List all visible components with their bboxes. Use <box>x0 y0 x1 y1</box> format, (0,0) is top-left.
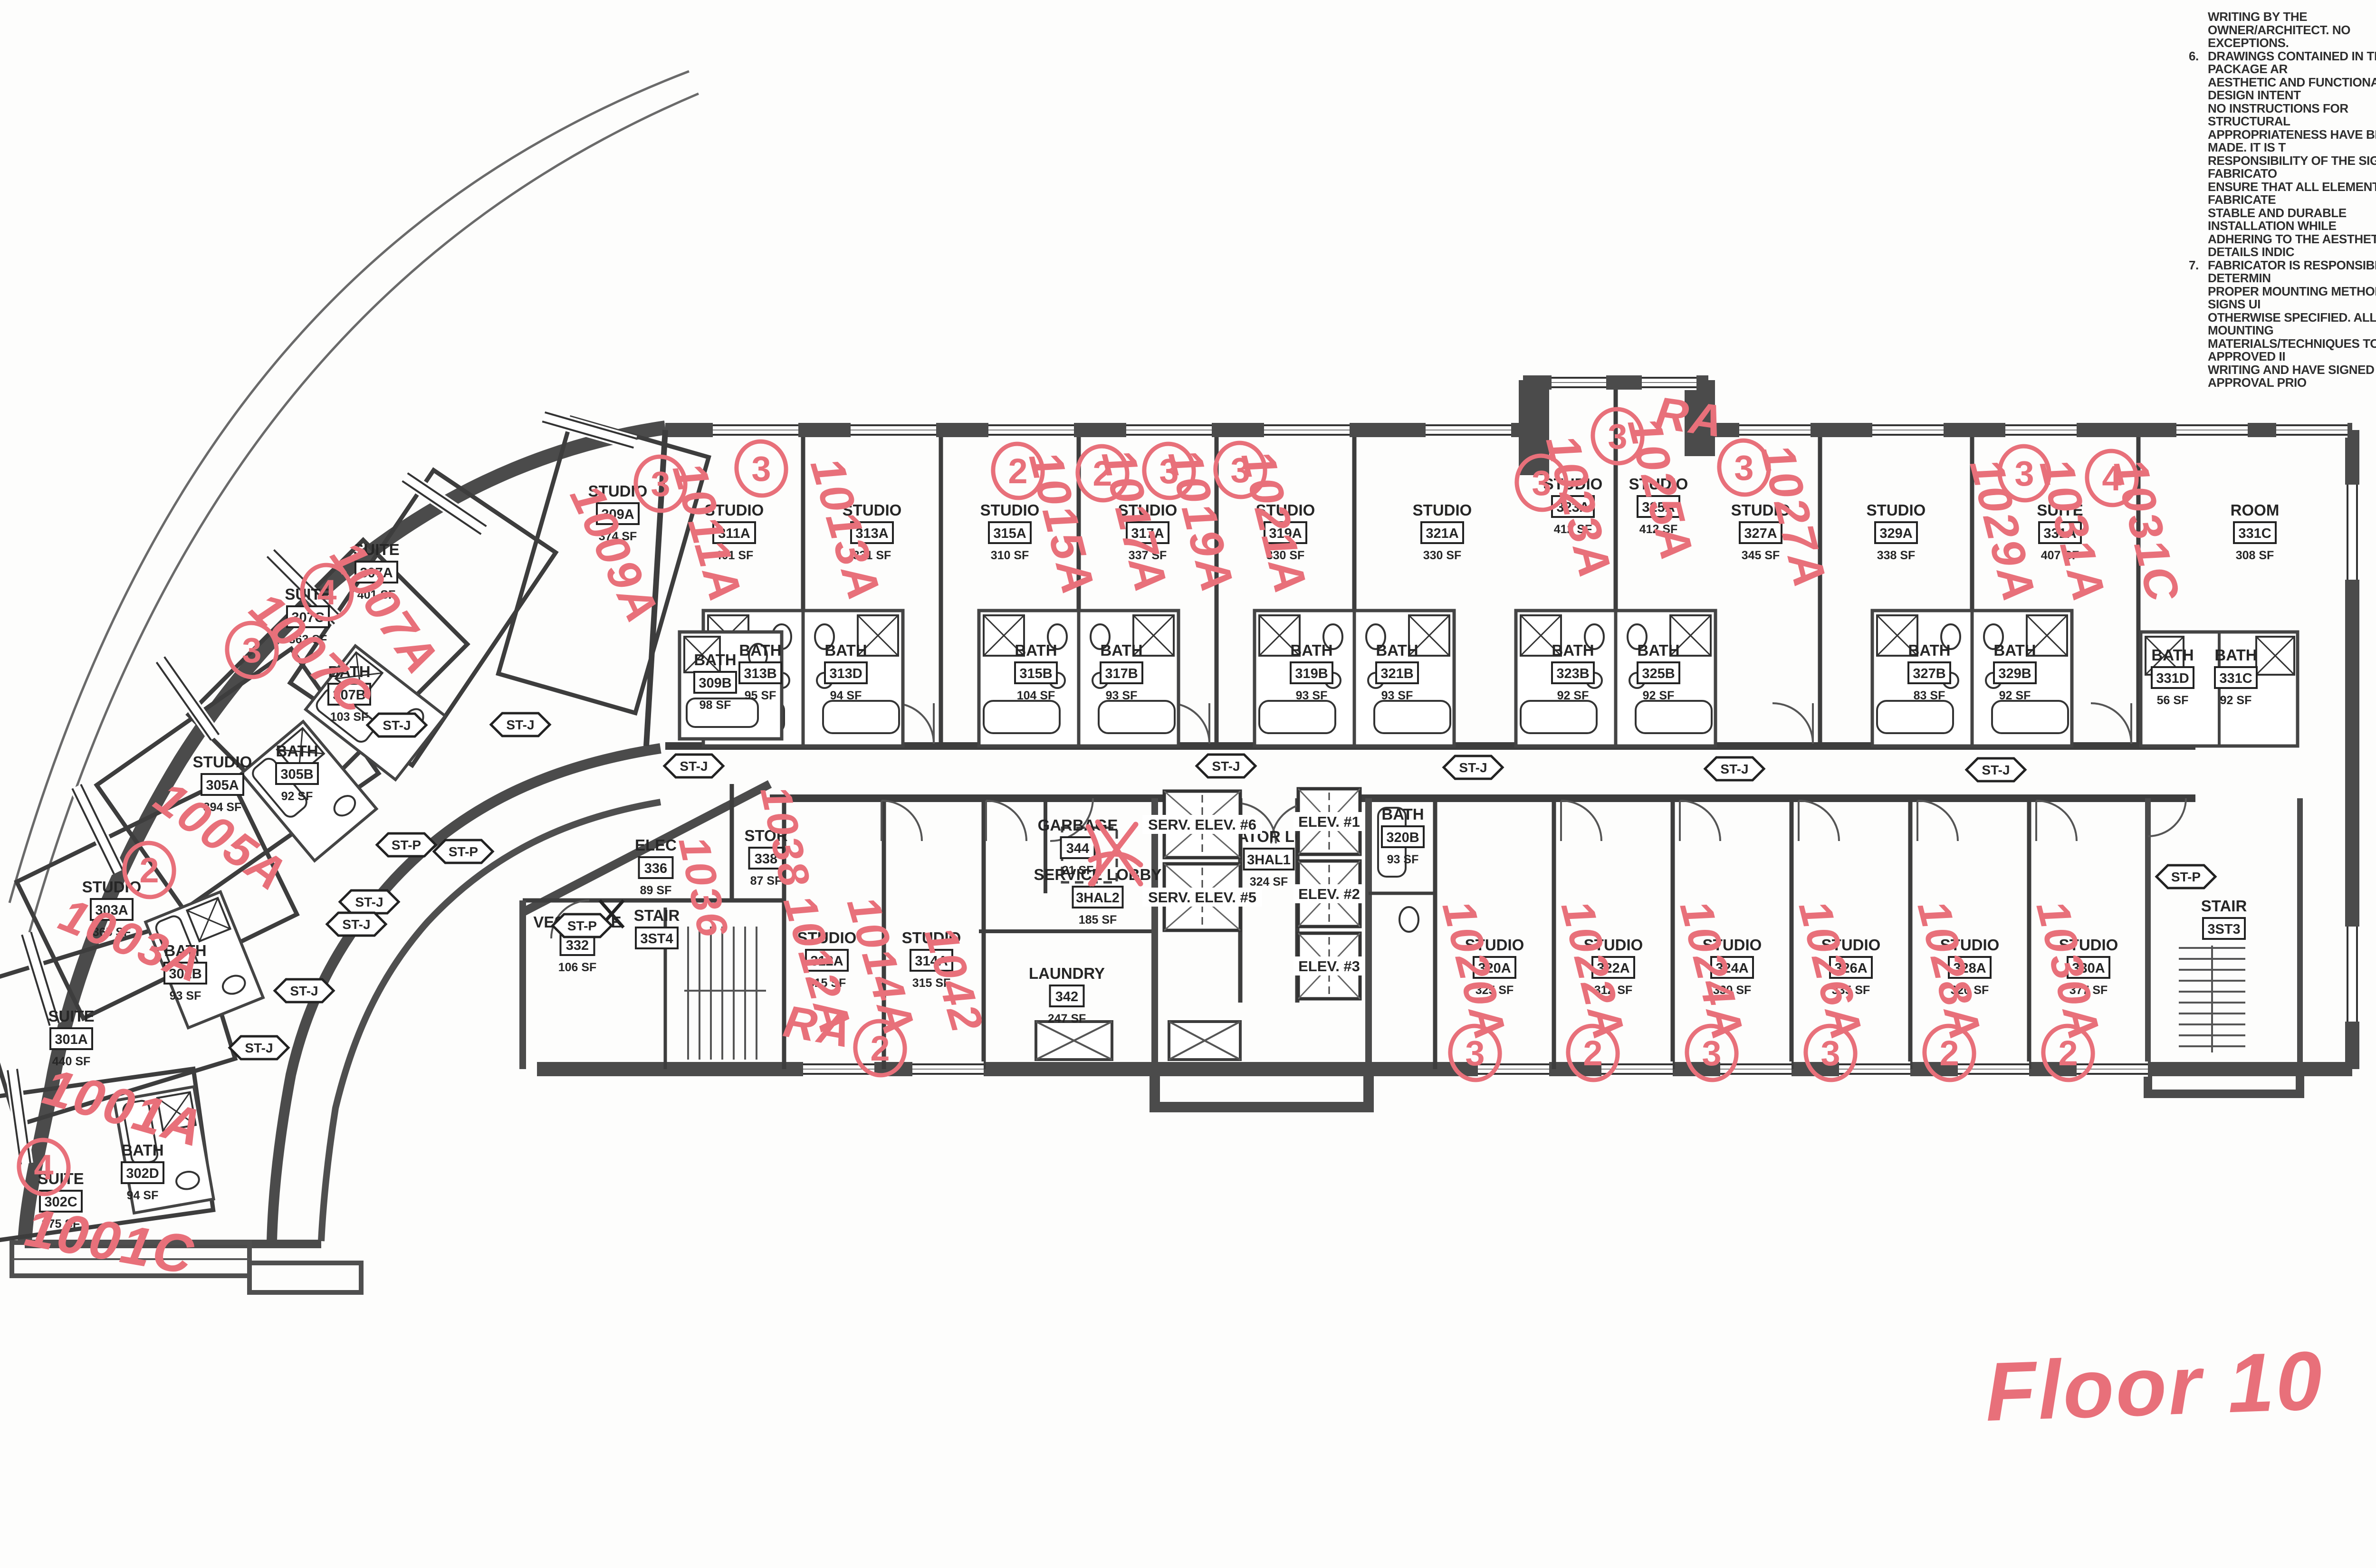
room-label-3ST3: STAIR3ST3 <box>2201 897 2247 939</box>
keynote-tag-ST-P: ST-P <box>434 840 493 863</box>
room-id: 336 <box>644 861 667 876</box>
room-label-320B: BATH320B93 SF <box>1381 805 1424 866</box>
room-name: BATH <box>276 742 318 760</box>
room-label-323B: BATH323B92 SF <box>1552 641 1594 702</box>
elevator-shaft: ELEV. #3 <box>1293 933 1365 999</box>
bath-cluster <box>1516 611 1715 746</box>
keynote-text: ST-J <box>290 984 318 998</box>
notes-item-line: AESTHETIC AND FUNCTIONAL DESIGN INTENT <box>2208 76 2376 102</box>
room-label-313B: BATH313B95 SF <box>739 641 781 702</box>
ink-count-number: 3 <box>2014 454 2034 493</box>
room-name: BATH <box>824 641 867 659</box>
room-label-331C: BATH331C92 SF <box>2214 646 2257 707</box>
room-name: BATH <box>1381 805 1424 823</box>
room-id: 3HAL2 <box>1076 890 1120 906</box>
room-id: 329A <box>1879 526 1912 541</box>
keynote-tag-ST-P: ST-P <box>377 833 436 856</box>
elevator-label: ELEV. #1 <box>1298 813 1360 830</box>
ink-count-number: 3 <box>1702 1033 1721 1073</box>
room-id: 321A <box>1426 526 1458 541</box>
keynote-text: ST-J <box>245 1041 273 1055</box>
floorplan-drawing: STUDIO309A374 SFSUITE307A401 SFSUITE307C… <box>0 0 2376 1568</box>
keynote-tag-ST-J: ST-J <box>275 979 334 1002</box>
room-id: 342 <box>1055 989 1078 1004</box>
room-name: BATH <box>739 641 781 659</box>
notes-item-line: STABLE AND DURABLE INSTALLATION WHILE <box>2208 207 2376 233</box>
bath-cluster <box>1255 611 1454 746</box>
room-area: 21 SF <box>1062 864 1094 877</box>
room-area: 185 SF <box>1079 913 1117 927</box>
room-name: BATH <box>1290 641 1332 659</box>
keynote-text: ST-J <box>1720 762 1748 776</box>
room-id: 301A <box>55 1032 87 1047</box>
keynote-tag-ST-J: ST-J <box>1705 757 1764 780</box>
notes-item-line: RESPONSIBILITY OF THE SIGNAGE FABRICATO <box>2208 154 2376 181</box>
ink-count-number: 2 <box>1583 1033 1602 1073</box>
room-id: 313D <box>829 666 862 681</box>
room-id: 317B <box>1105 666 1138 681</box>
room-name: LAUNDRY <box>1029 965 1105 982</box>
keynote-tag-ST-J: ST-J <box>664 755 723 777</box>
room-area: 94 SF <box>830 689 862 702</box>
room-id: 315A <box>993 526 1026 541</box>
keynote-tag-ST-P: ST-P <box>553 914 612 937</box>
notes-item-number: 7. <box>2189 259 2208 391</box>
room-id: 319B <box>1295 666 1328 681</box>
ink-count-number: 3 <box>1820 1033 1840 1073</box>
notes-item: 6.DRAWINGS CONTAINED IN THIS PACKAGE ARA… <box>2189 50 2376 259</box>
keynote-text: ST-J <box>1982 763 2010 777</box>
room-label-329A: STUDIO329A338 SF <box>1867 501 1926 562</box>
room-name: BATH <box>1015 641 1057 659</box>
notes-item-line: INSTALLATION. <box>2208 390 2376 391</box>
room-area: 345 SF <box>1742 549 1780 562</box>
room-area: 94 SF <box>127 1189 159 1202</box>
room-id: 323B <box>1556 666 1589 681</box>
room-id: 332 <box>566 938 589 953</box>
room-label-342: LAUNDRY342247 SF <box>1029 965 1105 1025</box>
room-name: BATH <box>1908 641 1950 659</box>
elevator-shaft: ELEV. #1 <box>1293 789 1365 854</box>
bath-cluster <box>1872 611 2072 746</box>
keynote-tag-ST-J: ST-J <box>1966 758 2025 781</box>
elevator-label: SERV. ELEV. #6 <box>1148 816 1256 833</box>
elevator-shaft: ELEV. #2 <box>1293 861 1365 927</box>
bath-cluster <box>979 611 1178 746</box>
room-label-329B: BATH329B92 SF <box>1993 641 2036 702</box>
scanned-floorplan-sheet: STUDIO309A374 SFSUITE307A401 SFSUITE307C… <box>0 0 2376 1568</box>
room-id: 327B <box>1913 666 1945 681</box>
notes-item: 7.FABRICATOR IS RESPONSIBLE FOR DETERMIN… <box>2189 259 2376 391</box>
keynote-text: ST-P <box>2171 870 2201 884</box>
notes-item-number: 6. <box>2189 50 2208 259</box>
room-name: STUDIO <box>193 753 252 771</box>
room-area: 98 SF <box>699 698 731 712</box>
room-area: 95 SF <box>745 689 776 702</box>
ink-count-number: 3 <box>1734 448 1753 488</box>
notes-item-line: OTHERWISE SPECIFIED. ALL MOUNTING <box>2208 311 2376 337</box>
ink-count-number: 2 <box>1939 1033 1959 1073</box>
ink-count-number: 2 <box>2058 1033 2078 1073</box>
elevator-label: SERV. ELEV. #5 <box>1148 889 1256 906</box>
keynote-text: ST-J <box>355 895 383 909</box>
room-area: 93 SF <box>1296 689 1328 702</box>
notes-item-line: MATERIALS/TECHNIQUES TO BE APPROVED II <box>2208 337 2376 363</box>
keynote-tag-ST-J: ST-J <box>327 913 386 936</box>
notes-header-line: EXCEPTIONS. <box>2189 37 2376 50</box>
notes-header-line: WRITING BY THE OWNER/ARCHITECT. NO <box>2189 10 2376 37</box>
room-area: 56 SF <box>2157 694 2189 707</box>
notes-item-line: ENSURE THAT ALL ELEMENTS ARE FABRICATE <box>2208 181 2376 207</box>
room-id: 305B <box>280 767 313 782</box>
room-area: 330 SF <box>1423 549 1462 562</box>
room-label-331D: BATH331D56 SF <box>2151 646 2194 707</box>
room-id: 325B <box>1642 666 1675 681</box>
keynote-text: ST-J <box>1212 759 1240 774</box>
ink-count-number: 3 <box>751 449 771 488</box>
room-area: 93 SF <box>1106 689 1138 702</box>
keynote-tag-ST-J: ST-J <box>1197 755 1255 777</box>
room-area: 89 SF <box>640 884 672 897</box>
room-label-315A: STUDIO315A310 SF <box>980 501 1040 562</box>
room-id: 3ST4 <box>640 931 673 947</box>
room-id: 331C <box>2238 526 2271 541</box>
room-name: STUDIO <box>1413 501 1472 519</box>
room-id: 331D <box>2156 671 2189 686</box>
room-id: 313B <box>744 666 776 681</box>
room-name: BATH <box>2151 646 2194 664</box>
ink-count-number: 3 <box>1465 1033 1485 1073</box>
room-name: BATH <box>694 651 736 669</box>
keynote-text: ST-J <box>383 718 411 733</box>
keynote-text: ST-P <box>449 844 478 859</box>
room-area: 93 SF <box>1387 853 1419 866</box>
room-label-305B: BATH305B92 SF <box>276 742 318 803</box>
room-name: BATH <box>2214 646 2257 664</box>
room-area: 324 SF <box>1250 875 1288 889</box>
room-area: 92 SF <box>1557 689 1589 702</box>
room-area: 106 SF <box>558 961 597 974</box>
elevator-label: ELEV. #2 <box>1298 886 1360 902</box>
notes-item-line: FABRICATOR IS RESPONSIBLE FOR DETERMIN <box>2208 259 2376 285</box>
room-area: 308 SF <box>2236 549 2274 562</box>
general-notes-block: WRITING BY THE OWNER/ARCHITECT. NOEXCEPT… <box>2189 10 2376 391</box>
room-area: 92 SF <box>281 790 313 803</box>
notes-item-line: ADHERING TO THE AESTHETIC DETAILS INDIC <box>2208 233 2376 259</box>
room-id: 309B <box>699 676 731 691</box>
room-id: 305A <box>206 778 239 793</box>
keynote-tag-ST-J: ST-J <box>340 890 399 913</box>
room-id: 3ST3 <box>2207 922 2240 937</box>
room-id: 329B <box>1998 666 2031 681</box>
notes-item-line: WRITING AND HAVE SIGNED APPROVAL PRIO <box>2208 363 2376 390</box>
notes-item-line: NO INSTRUCTIONS FOR STRUCTURAL <box>2208 102 2376 128</box>
room-label-302D: BATH302D94 SF <box>121 1141 163 1202</box>
room-name: BATH <box>1376 641 1418 659</box>
keynote-text: ST-J <box>342 917 370 932</box>
elevator-label: ELEV. #3 <box>1298 958 1360 975</box>
room-id: 3HAL1 <box>1247 852 1291 868</box>
room-label-327B: BATH327B83 SF <box>1908 641 1950 702</box>
room-id: 315B <box>1019 666 1052 681</box>
notes-item-line: PROPER MOUNTING METHODS FOR SIGNS UI <box>2208 285 2376 311</box>
room-name: BATH <box>1552 641 1594 659</box>
room-label-3ST4: STAIR3ST4 <box>634 907 680 948</box>
room-id: 331C <box>2219 671 2252 686</box>
ink-count-number: 2 <box>139 851 159 890</box>
ink-room-number: 1001C <box>21 1197 200 1286</box>
keynote-tag-ST-J: ST-J <box>230 1036 288 1059</box>
room-area: 93 SF <box>1381 689 1413 702</box>
room-area: 93 SF <box>170 989 201 1003</box>
ink-circled-count: 3 <box>733 438 790 498</box>
keynote-tag-ST-P: ST-P <box>2156 865 2215 888</box>
room-label-331C: ROOM331C308 SF <box>2231 501 2280 562</box>
room-name: STUDIO <box>1867 501 1926 519</box>
room-name: STAIR <box>634 907 680 924</box>
room-name: ROOM <box>2231 501 2280 519</box>
room-label-315B: BATH315B104 SF <box>1015 641 1057 702</box>
room-area: 92 SF <box>2220 694 2252 707</box>
room-label-309B: BATH309B98 SF <box>694 651 736 712</box>
ink-room-number: 1036 <box>669 832 737 942</box>
room-name: SUITE <box>48 1007 94 1025</box>
room-name: BATH <box>1637 641 1679 659</box>
room-area: 310 SF <box>991 549 1029 562</box>
room-id: 321B <box>1380 666 1413 681</box>
room-id: 320B <box>1386 830 1419 845</box>
ink-room-number: RA <box>1652 388 1728 447</box>
notes-item-line: APPROPRIATENESS HAVE BEEN MADE. IT IS T <box>2208 128 2376 154</box>
room-area: 83 SF <box>1914 689 1945 702</box>
room-id: 302D <box>126 1166 159 1181</box>
keynote-text: ST-J <box>680 759 708 774</box>
room-label-319B: BATH319B93 SF <box>1290 641 1332 702</box>
keynote-tag-ST-J: ST-J <box>367 714 426 736</box>
keynote-text: ST-P <box>567 918 597 933</box>
room-name: BATH <box>1993 641 2036 659</box>
room-label-325B: BATH325B92 SF <box>1637 641 1679 702</box>
room-area: 92 SF <box>1643 689 1675 702</box>
room-label-317B: BATH317B93 SF <box>1100 641 1142 702</box>
room-name: BATH <box>1100 641 1142 659</box>
room-area: 92 SF <box>1999 689 2031 702</box>
room-label-321A: STUDIO321A330 SF <box>1413 501 1472 562</box>
room-label-321B: BATH321B93 SF <box>1376 641 1418 702</box>
keynote-text: ST-J <box>1459 760 1487 775</box>
ink-count-number: 4 <box>34 1147 53 1187</box>
keynote-tag-ST-J: ST-J <box>491 713 550 736</box>
room-area: 104 SF <box>1017 689 1055 702</box>
keynote-tag-ST-J: ST-J <box>1444 756 1503 779</box>
room-name: STAIR <box>2201 897 2247 915</box>
room-id: 344 <box>1066 841 1089 856</box>
ink-room-number: 1031C <box>2104 453 2190 608</box>
keynote-text: ST-P <box>392 838 421 852</box>
ink-count-number: 2 <box>870 1029 890 1068</box>
room-area: 338 SF <box>1877 549 1916 562</box>
room-area: 247 SF <box>1048 1012 1086 1025</box>
room-label-313D: BATH313D94 SF <box>824 641 867 702</box>
notes-item-line: DRAWINGS CONTAINED IN THIS PACKAGE AR <box>2208 50 2376 76</box>
keynote-text: ST-J <box>506 717 534 732</box>
floor-title-handwriting: Floor 10 <box>1984 1334 2326 1439</box>
